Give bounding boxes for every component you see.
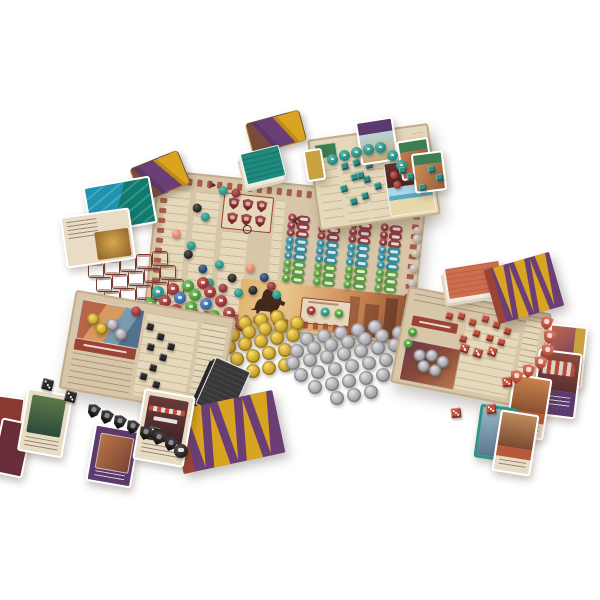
grid-token-icon [319, 242, 322, 244]
grid-token-icon [288, 239, 291, 241]
grid-tile-glyph [386, 288, 394, 292]
grid-tile-glyph [387, 272, 395, 276]
track-dash [153, 267, 160, 273]
silver-coin [290, 344, 304, 358]
track-dash [392, 331, 398, 338]
banner-text-line [419, 321, 451, 329]
grid-tile-glyph [386, 280, 394, 284]
track-dash [382, 330, 388, 337]
banner-text-line [84, 344, 127, 354]
scroll-token [96, 277, 112, 292]
silver-coin [354, 344, 368, 358]
silver-coin [376, 368, 390, 382]
grid-tile-glyph [392, 227, 400, 231]
silver-coin [330, 391, 344, 405]
gold-coin [254, 334, 268, 348]
die-pip [457, 414, 459, 416]
track-dash [247, 185, 253, 192]
grid-tile-glyph [295, 255, 303, 259]
die-pip [48, 386, 50, 388]
red-cube [445, 311, 454, 320]
grid-token-icon [350, 245, 353, 247]
track-dash [333, 324, 339, 331]
grid-token-icon [317, 265, 320, 267]
grid-token-icon [352, 230, 355, 232]
grid-token-icon [351, 238, 354, 240]
grid-tile-glyph [360, 239, 368, 243]
silver-coin [303, 353, 317, 367]
track-dash [352, 327, 358, 334]
grid-token-icon [378, 271, 381, 273]
track-dash [154, 257, 161, 263]
track-dash [207, 180, 213, 187]
track-dash [277, 188, 283, 195]
track-dash [243, 315, 249, 322]
silver-coin [325, 377, 339, 391]
grid-token-icon [291, 216, 294, 218]
grid-tile-glyph [356, 277, 364, 281]
silver-coin [324, 338, 338, 352]
grid-token-icon [285, 269, 288, 271]
track-dash [152, 277, 159, 283]
grid-token-icon [318, 249, 321, 251]
garrison-shield [254, 215, 266, 228]
circle-marker-icon [242, 224, 252, 234]
grid-token-icon [284, 276, 287, 278]
grid-token-icon [382, 241, 385, 243]
die-pip [46, 383, 48, 385]
event-card [355, 116, 399, 165]
track-dash [151, 287, 158, 293]
silver-coin [362, 356, 376, 370]
grid-tile-glyph [299, 225, 307, 229]
garrison-shield [242, 198, 254, 211]
grid-tile-glyph [388, 265, 396, 269]
reward-token-icon [337, 312, 340, 315]
grid-tile-glyph [390, 242, 398, 246]
grid-tile-glyph [329, 236, 337, 240]
grid-token [374, 283, 383, 292]
track-dash [362, 328, 368, 335]
grid-token [343, 280, 352, 289]
red-cube [457, 312, 466, 321]
grid-tile-glyph [325, 273, 333, 277]
silver-coin [337, 347, 351, 361]
character-card [491, 409, 539, 476]
card-art [497, 412, 537, 451]
gold-coin [270, 331, 284, 345]
black-shield [85, 402, 102, 420]
silver-coin [307, 341, 321, 355]
contract-card [411, 150, 448, 194]
gold-coin [246, 349, 260, 363]
track-dash [313, 322, 319, 329]
track-dash [197, 179, 203, 186]
card-text-lines [140, 442, 180, 460]
grid-token-icon [382, 233, 385, 235]
scroll-token [112, 274, 128, 289]
track-dash [323, 323, 329, 330]
grid-tile-glyph [296, 248, 304, 252]
grid-token-icon [290, 223, 293, 225]
silver-coin [345, 359, 359, 373]
garrison-shield-crest [232, 200, 237, 204]
garrison-shield [226, 212, 238, 225]
track-dash [296, 190, 302, 197]
card-text-lines [498, 459, 526, 471]
track-dash [155, 247, 162, 253]
green-token [407, 327, 418, 338]
die-pip [455, 412, 457, 414]
grid-tile-glyph [295, 263, 303, 267]
reward-text-line [308, 301, 338, 306]
garrison-shield-crest [244, 216, 249, 220]
grid-token-icon [347, 275, 350, 277]
grid-token [312, 277, 321, 286]
grid-token-icon [286, 261, 289, 263]
reference-card [60, 207, 137, 268]
grid-tile-glyph [389, 257, 397, 261]
black-shield-crest [91, 407, 97, 413]
grid-tile-glyph [328, 243, 336, 247]
silver-coin [311, 365, 325, 379]
grid-tile-glyph [355, 284, 363, 288]
empty-slot [411, 249, 420, 258]
silver-coin [359, 371, 373, 385]
track-dash [158, 218, 165, 224]
grid-token-icon [288, 246, 291, 248]
die-pip [45, 380, 47, 382]
reward-token [334, 308, 344, 318]
card-art [414, 162, 445, 191]
grid-token-icon [316, 272, 319, 274]
card-art [94, 228, 132, 260]
silver-coin [286, 356, 300, 370]
track-dash [157, 228, 164, 234]
empty-slot [412, 234, 421, 243]
silver-coin [364, 385, 378, 399]
track-dash [160, 198, 167, 204]
reward-token [320, 307, 330, 317]
silver-coin [342, 374, 356, 388]
scene [0, 0, 600, 600]
silver-coin [328, 362, 342, 376]
track-dash [342, 325, 348, 332]
grid-tile-glyph [390, 250, 398, 254]
track-dash [273, 318, 279, 325]
track-dash [257, 186, 263, 193]
building-card [17, 387, 73, 458]
gold-coin [278, 343, 292, 357]
grid-token-icon [289, 231, 292, 233]
empty-slot [409, 264, 418, 273]
card-art [95, 433, 135, 474]
reward-token-icon [323, 310, 326, 313]
grid-tile-glyph [324, 281, 332, 285]
grid-tile-glyph [360, 231, 368, 235]
reward-token-icon [309, 309, 312, 312]
track-dash [303, 321, 309, 328]
black-shield-crest [117, 418, 123, 424]
gold-coin [262, 361, 276, 375]
silver-coin [347, 388, 361, 402]
black-shield-crest [130, 423, 136, 429]
green-token-icon [411, 330, 415, 333]
garrison-shield-crest [246, 201, 251, 205]
board-marker [205, 278, 215, 288]
grid-tile-glyph [298, 232, 306, 236]
grid-token-icon [349, 253, 352, 255]
garrison-shield [256, 200, 268, 213]
track-dash [372, 329, 378, 336]
green-token-icon [406, 342, 410, 345]
grid-token-icon [348, 260, 351, 262]
grid-token-icon [383, 226, 386, 228]
scroll-token [128, 271, 144, 286]
grid-token-icon [318, 257, 321, 259]
garrison-shield-crest [258, 218, 263, 222]
card-art [359, 130, 397, 163]
gold-coin [278, 358, 292, 372]
track-dash [293, 320, 299, 327]
grid-tile-glyph [299, 217, 307, 221]
grid-tile-glyph [297, 240, 305, 244]
silver-coin [294, 368, 308, 382]
silver-coin [320, 350, 334, 364]
die-pip [453, 410, 455, 412]
grid-tile-glyph [326, 258, 334, 262]
grid-tile-glyph [391, 235, 399, 239]
grid-tile-glyph [356, 269, 364, 273]
track-dash [156, 237, 163, 243]
grid-tile-glyph [326, 266, 334, 270]
silver-coin [379, 353, 393, 367]
board-marker [245, 263, 255, 273]
grid-tile-glyph [327, 251, 335, 255]
track-dash [159, 208, 166, 214]
reward-token [306, 306, 316, 316]
track-dash [253, 316, 259, 323]
garrison-shield [228, 197, 240, 210]
track-dash [267, 187, 273, 194]
garrison-shield-crest [259, 203, 264, 207]
track-dash [283, 319, 289, 326]
red-die [451, 408, 462, 419]
grid-token-icon [320, 234, 323, 236]
black-shield-crest [104, 413, 110, 419]
grid-token-icon [378, 279, 381, 281]
grid-token-icon [377, 286, 380, 288]
red-cube [481, 314, 490, 323]
card-text-lines [24, 436, 59, 452]
silver-coin [308, 380, 322, 394]
teal-card-deck [240, 145, 287, 186]
gold-coin [262, 346, 276, 360]
grid-tile-glyph [293, 278, 301, 282]
grid-tile-glyph [359, 246, 367, 250]
icon-rows [67, 352, 134, 394]
grid-token-icon [379, 263, 382, 265]
grid-token [281, 274, 290, 283]
grid-token-icon [346, 283, 349, 285]
track-dash [286, 189, 292, 196]
garrison-shield-crest [230, 215, 235, 219]
black-shield [98, 408, 115, 426]
grid-token-icon [348, 268, 351, 270]
grid-token-icon [380, 256, 383, 258]
silver-coin [371, 341, 385, 355]
card-art [26, 394, 66, 437]
grid-token-icon [287, 254, 290, 256]
track-dash [306, 191, 312, 198]
grid-tile-glyph [358, 254, 366, 258]
grid-token-icon [315, 280, 318, 282]
grid-tile-glyph [294, 270, 302, 274]
grid-tile-glyph [357, 262, 365, 266]
grid-token-icon [381, 248, 384, 250]
gold-coin [238, 337, 252, 351]
track-dash [263, 317, 269, 324]
